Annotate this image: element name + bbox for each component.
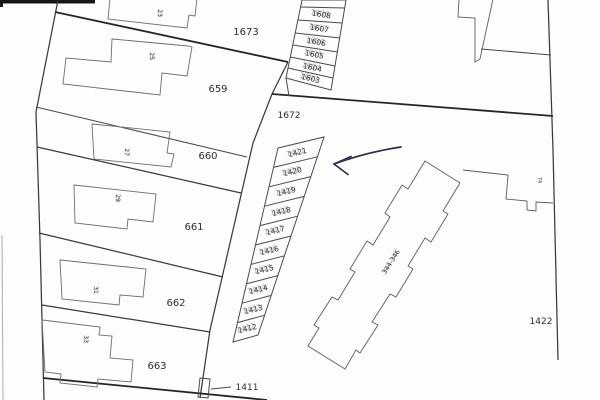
connector-1672 — [286, 78, 289, 96]
parcel-label-1417: 1417 — [265, 224, 286, 237]
parcel-label-1673: 1673 — [233, 27, 258, 38]
building-outline-northeast — [458, 0, 493, 62]
house-number-25: 25 — [148, 52, 155, 60]
parcel-label-659: 659 — [208, 84, 227, 95]
parcel-outline-1411 — [198, 378, 210, 398]
boundary-659-660 — [36, 107, 247, 157]
leader-line-1411 — [211, 387, 231, 389]
parcel-label-1419: 1419 — [276, 185, 297, 198]
parcel-label-662: 662 — [166, 298, 185, 309]
hand-drawn-arrow-annotation — [334, 147, 401, 175]
scan-edge-artifact — [0, 0, 95, 4]
parcel-label-1672: 1672 — [278, 111, 301, 121]
boundary-south — [43, 378, 267, 400]
parcel-label-1607: 1607 — [309, 23, 329, 35]
arrow-head-upper — [334, 157, 351, 165]
parcel-label-661: 661 — [184, 222, 203, 233]
parcel-label-1605: 1605 — [304, 48, 325, 61]
parcel-label-1412: 1412 — [237, 322, 258, 335]
street-line-far-west — [2, 235, 3, 400]
apartment-block-label: 344-346 — [381, 248, 402, 275]
parcel-label-1422: 1422 — [530, 317, 553, 327]
house-outline-33 — [42, 320, 133, 387]
house-outline-29 — [74, 185, 156, 229]
parcel-label-1413: 1413 — [243, 303, 264, 316]
parcel-label-1608: 1608 — [311, 9, 331, 21]
house-number-23: 23 — [156, 9, 163, 17]
mid-strip-divider — [242, 295, 271, 303]
parcel-label-1416: 1416 — [259, 244, 280, 257]
boundary-662-663 — [42, 305, 210, 332]
map-canvas: 1608 1607 1606 1605 1604 1603 1421 1420 … — [0, 0, 600, 400]
small-structure-label: 74 — [536, 177, 542, 183]
top-strip-divider — [298, 20, 342, 23]
mid-parcel-strip: 1421 1420 1419 1418 1417 1416 1415 1414 … — [233, 137, 324, 342]
street-line-west — [36, 0, 58, 400]
parcel-label-1603: 1603 — [300, 72, 321, 85]
parcel-label-1411: 1411 — [236, 383, 259, 393]
house-number-27: 27 — [123, 148, 130, 156]
parcel-label-1418: 1418 — [271, 205, 292, 218]
mid-strip-divider — [256, 236, 292, 245]
boundary-northeast — [481, 49, 551, 55]
scan-edge-artifact-corner — [0, 0, 3, 7]
house-outline-31 — [60, 260, 146, 305]
house-outline-25 — [63, 39, 192, 95]
parcel-label-660: 660 — [198, 151, 217, 162]
house-number-31: 31 — [92, 286, 99, 294]
road-line — [272, 94, 553, 116]
house-outline-23 — [108, 0, 197, 28]
arrow-head-lower — [334, 164, 348, 175]
house-number-33: 33 — [82, 335, 89, 343]
top-strip-divider — [301, 7, 345, 8]
cadastral-map-scan: 1608 1607 1606 1605 1604 1603 1421 1420 … — [0, 0, 600, 400]
arrow-shaft — [334, 147, 401, 164]
boundary-661-662 — [39, 233, 223, 277]
mid-strip-divider — [265, 196, 305, 206]
mid-strip-divider — [251, 256, 284, 265]
boundary-east-border — [548, 0, 558, 360]
mid-strip-divider — [247, 276, 278, 284]
parcel-label-1420: 1420 — [282, 165, 303, 178]
house-number-29: 29 — [114, 194, 121, 202]
parcel-label-663: 663 — [147, 361, 166, 372]
parcel-label-1414: 1414 — [248, 283, 269, 296]
parcel-label-1606: 1606 — [306, 36, 327, 48]
parcel-label-1421: 1421 — [287, 146, 308, 159]
mid-strip-divider — [238, 315, 265, 322]
top-parcel-strip: 1608 1607 1606 1605 1604 1603 — [286, 0, 346, 90]
parcel-label-1415: 1415 — [254, 263, 275, 276]
